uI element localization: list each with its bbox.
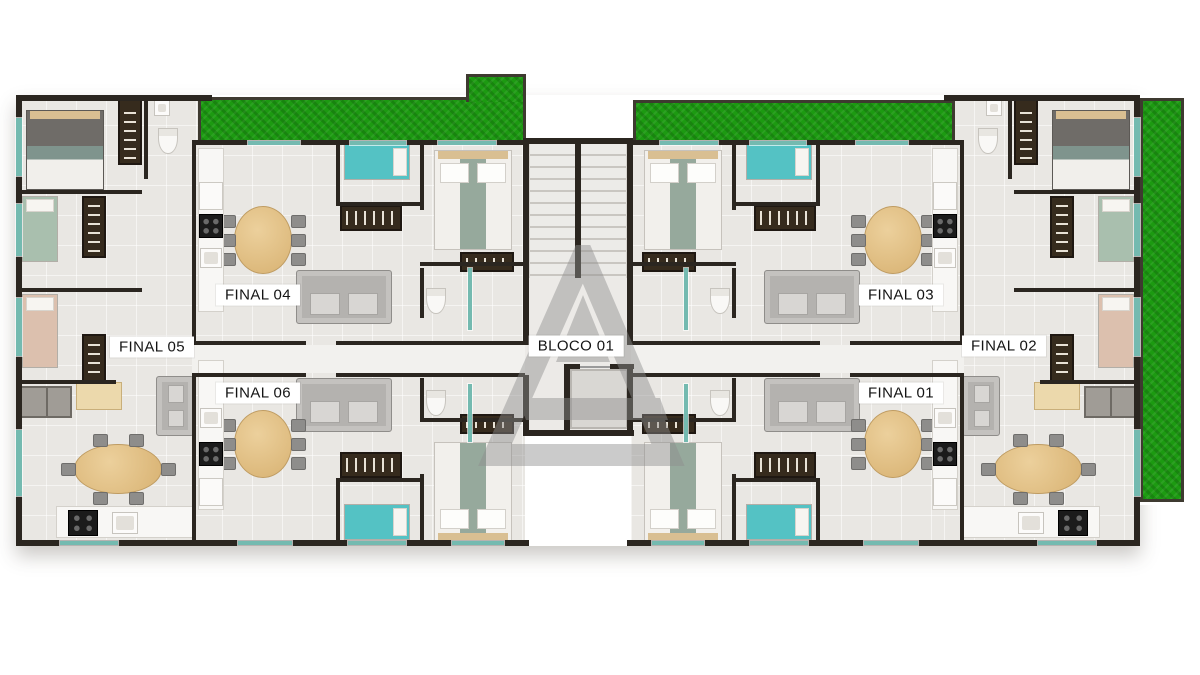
unit-label: FINAL 01 [859, 383, 943, 404]
unit-label: FINAL 03 [859, 285, 943, 306]
unit-label-layer: FINAL 04FINAL 05FINAL 06FINAL 03FINAL 02… [0, 0, 1200, 675]
unit-label: FINAL 05 [110, 337, 194, 358]
floor-plan-canvas: FINAL 04FINAL 05FINAL 06FINAL 03FINAL 02… [0, 0, 1200, 675]
unit-label: FINAL 02 [962, 336, 1046, 357]
unit-label: FINAL 04 [216, 285, 300, 306]
block-label: BLOCO 01 [529, 336, 624, 357]
unit-label: FINAL 06 [216, 383, 300, 404]
